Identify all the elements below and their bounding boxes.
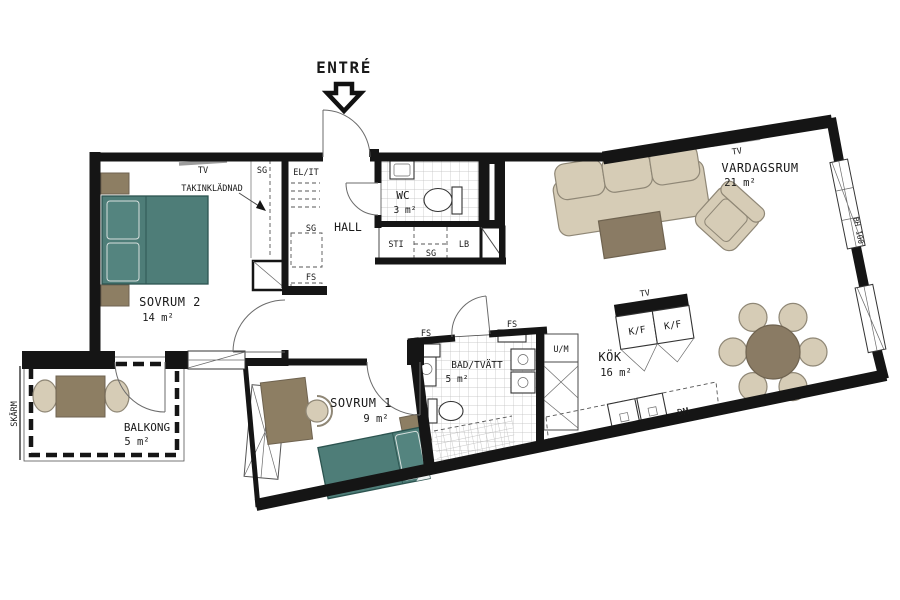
balcony-bulkhead (22, 351, 115, 369)
balcony-bulkhead (165, 351, 188, 369)
room-label-wc: WC (396, 189, 409, 202)
door-stop (369, 149, 379, 157)
sovrum2-furniture (101, 161, 227, 306)
sti-label: STI (388, 240, 403, 250)
tv-label-kok: TV (639, 288, 651, 299)
window (855, 284, 886, 352)
desk-chair (306, 400, 328, 422)
balcony-table (56, 376, 105, 417)
el-it-shelves (291, 183, 320, 207)
lb-label: LB (459, 240, 469, 250)
wc-toilet (424, 189, 452, 212)
floor-plan-page: K/F K/F (0, 0, 900, 600)
room-label-hall: HALL (334, 220, 362, 234)
area-label-balkong: 5 m² (124, 436, 149, 448)
area-label-vardagsrum: 21 m² (724, 177, 756, 189)
room-label-bad: BAD/TVÄTT (451, 360, 503, 371)
dm-label: DM (676, 406, 690, 419)
window-balcony (188, 351, 245, 369)
wall-bottom (256, 375, 886, 505)
skarm-label: SKÄRM (9, 401, 20, 427)
fs-label-bad-left: FS (421, 329, 431, 339)
tv-label-vardagsrum: TV (731, 146, 743, 157)
sg-label-sovrum2: SG (257, 166, 267, 176)
leader-arrowhead (256, 200, 266, 211)
entry-door (323, 110, 370, 157)
room-label-sovrum1: SOVRUM 1 (330, 396, 392, 410)
bath-toilet (439, 402, 463, 421)
vardagsrum-furniture (549, 138, 827, 401)
fridge-freezer: K/F K/F (614, 294, 698, 374)
dining-table (746, 325, 800, 379)
fs-label-bad-right: FS (507, 320, 517, 330)
room-label-vardagsrum: VARDAGSRUM (721, 161, 798, 175)
room-label-balkong: BALKONG (124, 421, 170, 434)
washing-machine (511, 349, 535, 370)
dryer (511, 372, 535, 393)
area-label-kok: 16 m² (600, 367, 632, 379)
dining-chair (799, 338, 827, 366)
entry-label: ENTRÉ (316, 58, 372, 77)
sg-label-forrad: SG (426, 249, 436, 259)
um-label: U/M (553, 345, 568, 355)
entry-marker: ENTRÉ (316, 58, 372, 111)
area-label-sovrum1: 9 m² (363, 413, 388, 425)
tv-label-sovrum2: TV (198, 166, 208, 176)
nightstand (101, 285, 129, 306)
balcony-chair (33, 380, 57, 412)
takinkladnad-annotation (239, 193, 266, 211)
dining-chair (719, 338, 747, 366)
room-label-sovrum2: SOVRUM 2 (139, 295, 201, 309)
room-label-kok: KÖK (598, 348, 621, 364)
sg-label-hall: SG (306, 224, 316, 234)
nightstand (101, 173, 129, 194)
bath-cistern (428, 399, 437, 423)
wall-top-slant (603, 121, 832, 158)
bathroom-door (452, 296, 490, 337)
takinkladnad-label: TAKINKLÄDNAD (181, 183, 242, 194)
el-it-label: EL/IT (293, 168, 319, 178)
wardrobe-sg-hall (291, 233, 322, 267)
sovrum2-door (233, 300, 285, 352)
fs-label-hall: FS (306, 273, 316, 283)
floor-plan: K/F K/F (0, 0, 900, 600)
area-label-sovrum2: 14 m² (142, 312, 174, 324)
wall-cap (282, 286, 327, 295)
wc-door (346, 183, 378, 215)
desk (260, 377, 312, 444)
area-label-wc: 3 m² (394, 205, 417, 216)
wc-cistern (452, 187, 462, 214)
entry-arrow-icon (327, 84, 361, 111)
pillow (107, 201, 139, 239)
pillow (107, 243, 139, 281)
wall-chunk (407, 340, 424, 365)
balcony (20, 357, 184, 461)
area-label-bad: 5 m² (446, 374, 469, 385)
balcony-chair (105, 380, 129, 412)
